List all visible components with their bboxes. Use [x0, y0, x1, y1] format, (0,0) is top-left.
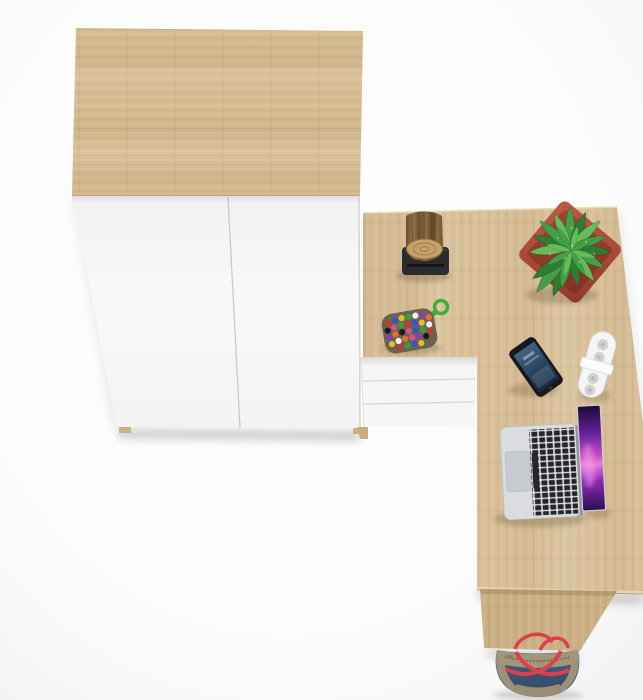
log-vase: [402, 212, 449, 276]
laptop-trackpad: [505, 451, 531, 492]
product-image: [0, 0, 643, 700]
wardrobe-front: [72, 196, 367, 434]
wardrobe-foot: [119, 427, 131, 433]
scene-canvas: [0, 0, 643, 700]
laptop-screen: [577, 405, 605, 511]
wardrobe: [72, 28, 367, 434]
wardrobe-top: [72, 28, 363, 196]
